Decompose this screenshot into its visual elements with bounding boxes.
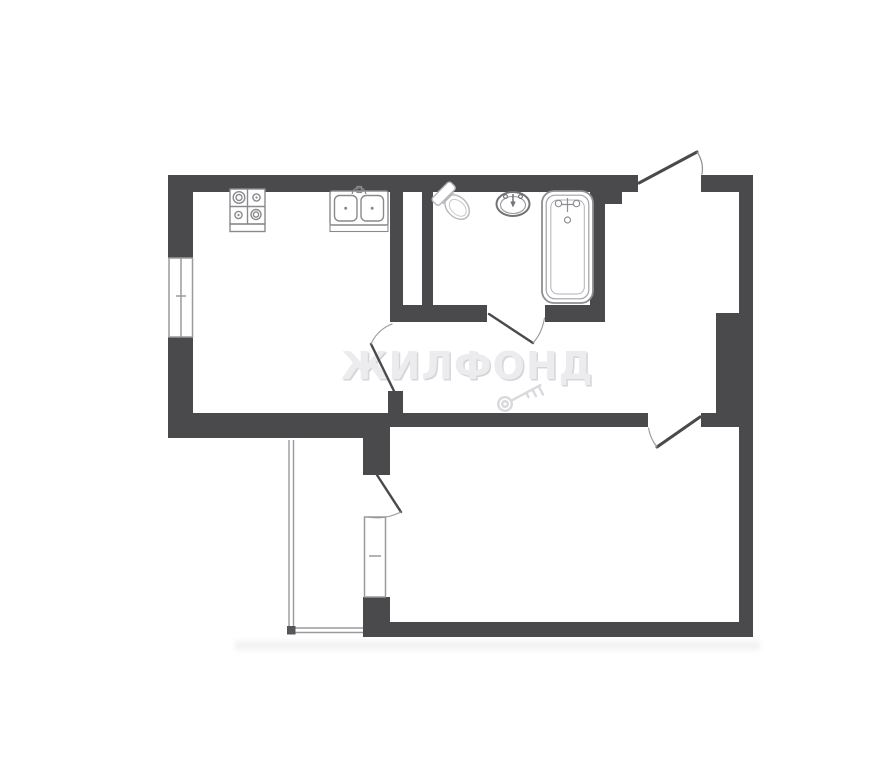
wall-kitchen-door-stub bbox=[388, 391, 403, 413]
key-icon bbox=[496, 379, 545, 415]
living-room-balcony-window bbox=[365, 517, 386, 597]
wall-kitchen-bottom bbox=[168, 413, 390, 438]
bathtub-icon bbox=[542, 191, 593, 303]
walls bbox=[168, 175, 753, 637]
double-sink-icon bbox=[330, 187, 388, 232]
kitchen-window bbox=[169, 258, 193, 337]
kitchen-door bbox=[371, 324, 394, 391]
scan-shadow bbox=[235, 641, 760, 650]
wall-kitchen-east bbox=[390, 192, 403, 322]
wall-duct-east bbox=[422, 192, 433, 307]
wall-bottom bbox=[388, 622, 753, 637]
living-room-door bbox=[649, 417, 701, 447]
railing-corner-post bbox=[287, 626, 296, 635]
floor-plan: ЖИЛФОНД bbox=[0, 0, 890, 768]
wall-living-west-b bbox=[363, 597, 390, 637]
wall-hall-south bbox=[390, 413, 648, 427]
entrance-door bbox=[639, 152, 702, 183]
wall-hall-south-jamb bbox=[701, 413, 753, 427]
balcony-door bbox=[367, 475, 401, 518]
stove-icon bbox=[230, 189, 265, 232]
floor-plan-canvas bbox=[0, 0, 890, 768]
wall-entrance-step bbox=[605, 192, 622, 204]
wall-bathroom-bottom-left bbox=[390, 305, 487, 322]
bathroom-door bbox=[489, 314, 545, 343]
balcony-railing bbox=[287, 440, 363, 635]
wall-pillar-right bbox=[716, 313, 742, 427]
wall-left-upper bbox=[168, 175, 193, 258]
wall-living-west-a bbox=[363, 438, 390, 475]
door-symbols bbox=[367, 152, 702, 518]
washbasin-icon bbox=[497, 192, 530, 216]
